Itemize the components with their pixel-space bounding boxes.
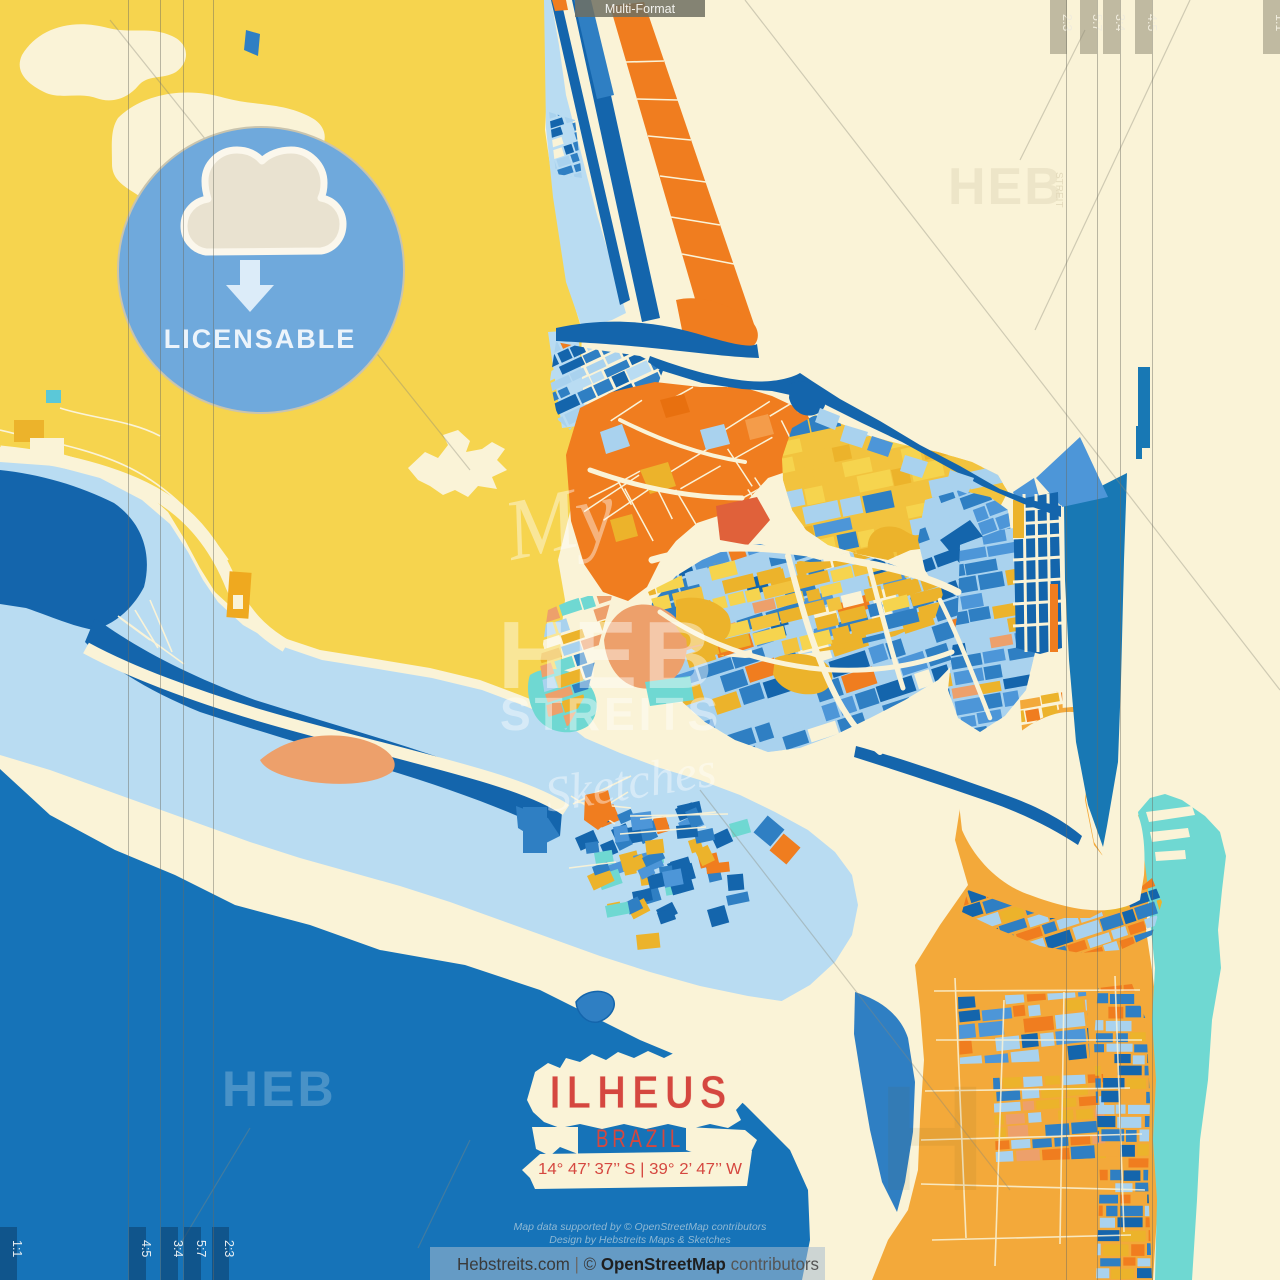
svg-text:2:3: 2:3 bbox=[222, 1240, 236, 1257]
svg-text:14° 47’ 37’’ S | 39° 2’: 14° 47’ 37’’ S | 39° 2’ 47’’ W bbox=[538, 1161, 742, 1178]
svg-text:STREIT: STREIT bbox=[1053, 172, 1064, 208]
svg-text:Map data supported by © OpenSt: Map data supported by © OpenStreetMap co… bbox=[514, 1221, 768, 1233]
svg-text:BRAZIL: BRAZIL bbox=[596, 1125, 684, 1153]
svg-text:5:7: 5:7 bbox=[194, 1240, 208, 1257]
svg-text:1:1: 1:1 bbox=[10, 1240, 24, 1257]
svg-text:HEB: HEB bbox=[948, 158, 1064, 216]
svg-text:3:4: 3:4 bbox=[171, 1240, 185, 1257]
svg-text:STREITS: STREITS bbox=[500, 688, 722, 740]
svg-text:Multi-Format: Multi-Format bbox=[605, 2, 676, 16]
svg-text:HEB: HEB bbox=[222, 1061, 337, 1117]
svg-text:4:5: 4:5 bbox=[139, 1240, 153, 1257]
svg-text:LICENSABLE: LICENSABLE bbox=[164, 324, 357, 354]
svg-text:Design by Hebstreits Maps & Sk: Design by Hebstreits Maps & Sketches bbox=[549, 1234, 731, 1246]
svg-text:ILHEUS: ILHEUS bbox=[550, 1066, 733, 1118]
svg-text:Hebstreits.com | © OpenStreetM: Hebstreits.com | © OpenStreetMap contrib… bbox=[457, 1254, 819, 1274]
svg-text:1:1: 1:1 bbox=[1273, 14, 1280, 31]
